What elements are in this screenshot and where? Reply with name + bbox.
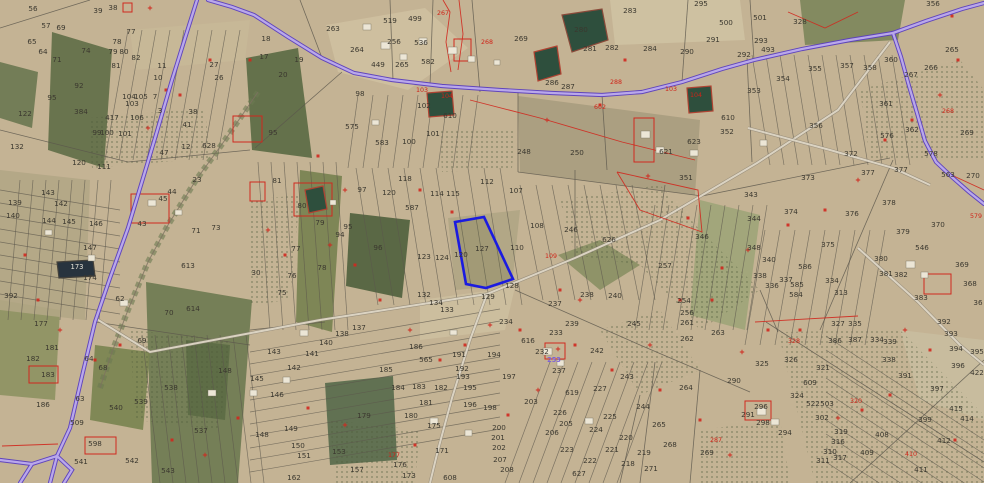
svg-text:238: 238 [580,290,594,299]
svg-text:147: 147 [83,243,97,252]
svg-text:248: 248 [517,147,531,156]
svg-text:536: 536 [414,38,428,47]
svg-text:95: 95 [268,128,277,137]
svg-text:65: 65 [27,37,36,46]
svg-text:384: 384 [74,107,88,116]
svg-text:287: 287 [561,82,575,91]
svg-text:98: 98 [355,89,365,98]
svg-text:64: 64 [38,47,48,56]
svg-text:103: 103 [665,86,677,93]
svg-text:578: 578 [924,149,938,158]
svg-text:122: 122 [18,109,32,118]
svg-text:177: 177 [34,319,48,328]
svg-text:110: 110 [510,243,524,252]
svg-text:587: 587 [405,203,419,212]
svg-text:96: 96 [373,243,383,252]
svg-text:115: 115 [446,189,460,198]
svg-text:149: 149 [284,424,298,433]
svg-text:378: 378 [882,198,896,207]
svg-text:237: 237 [552,366,566,375]
svg-text:357: 357 [840,61,854,70]
svg-text:186: 186 [36,400,50,409]
svg-text:57: 57 [41,21,50,30]
svg-text:179: 179 [357,411,371,420]
svg-text:280: 280 [574,25,588,34]
svg-text:92: 92 [74,81,83,90]
svg-text:182: 182 [434,383,448,392]
svg-text:541: 541 [74,457,88,466]
svg-text:38: 38 [188,107,198,116]
svg-text:254: 254 [677,296,691,305]
svg-text:265: 265 [945,45,959,54]
svg-text:181: 181 [419,398,433,407]
svg-text:151: 151 [297,451,311,460]
svg-text:586: 586 [798,262,812,271]
svg-text:267: 267 [904,70,918,79]
svg-text:79: 79 [315,218,325,227]
svg-text:283: 283 [623,6,637,15]
svg-text:146: 146 [89,219,103,228]
svg-text:180: 180 [404,411,418,420]
svg-text:76: 76 [287,271,297,280]
svg-text:104: 104 [441,93,453,100]
svg-text:132: 132 [10,142,24,151]
svg-text:362: 362 [905,125,919,134]
svg-text:290: 290 [680,47,694,56]
svg-text:351: 351 [679,173,693,182]
svg-text:17: 17 [259,52,268,61]
svg-text:194: 194 [487,350,501,359]
svg-text:360: 360 [884,55,898,64]
svg-text:409: 409 [860,448,874,457]
svg-text:290: 290 [727,376,741,385]
svg-text:10: 10 [153,73,163,82]
svg-text:284: 284 [643,44,657,53]
svg-text:244: 244 [636,402,650,411]
svg-text:338: 338 [882,355,896,364]
svg-text:185: 185 [379,365,393,374]
svg-text:379: 379 [896,227,910,236]
svg-text:74: 74 [81,46,91,55]
svg-text:11: 11 [157,61,166,70]
svg-text:346: 346 [695,232,709,241]
svg-text:146: 146 [270,390,284,399]
svg-text:70: 70 [164,308,174,317]
svg-text:137: 137 [352,323,366,332]
svg-text:519: 519 [383,16,397,25]
svg-text:129: 129 [481,292,495,301]
svg-text:292: 292 [737,50,751,59]
svg-text:20: 20 [278,70,288,79]
svg-text:613: 613 [181,261,195,270]
svg-text:153: 153 [332,447,346,456]
svg-text:256: 256 [680,308,694,317]
svg-text:128: 128 [505,281,519,290]
svg-text:610: 610 [721,113,735,122]
svg-text:537: 537 [194,426,208,435]
svg-text:263: 263 [326,24,340,33]
svg-text:356: 356 [926,0,940,8]
svg-text:77: 77 [291,244,300,253]
svg-text:414: 414 [960,414,974,423]
svg-text:623: 623 [687,137,701,146]
svg-text:124: 124 [435,253,449,262]
svg-text:80: 80 [297,201,307,210]
svg-text:500: 500 [719,18,733,27]
svg-text:267: 267 [437,10,449,17]
svg-text:509: 509 [70,418,84,427]
svg-text:7: 7 [153,92,158,101]
svg-text:120: 120 [382,188,396,197]
svg-text:269: 269 [960,128,974,137]
svg-text:62: 62 [115,294,124,303]
svg-text:415: 415 [949,404,963,413]
svg-text:340: 340 [762,255,776,264]
svg-text:200: 200 [492,423,506,432]
svg-text:224: 224 [589,425,603,434]
svg-text:302: 302 [815,413,829,422]
svg-text:320: 320 [850,398,862,405]
svg-text:105: 105 [134,92,148,101]
svg-text:44: 44 [167,187,177,196]
svg-text:377: 377 [861,168,875,177]
svg-text:373: 373 [801,173,815,182]
svg-text:522: 522 [806,399,820,408]
svg-text:106: 106 [130,113,144,122]
svg-text:264: 264 [679,383,693,392]
svg-text:218: 218 [621,459,635,468]
svg-text:138: 138 [335,329,349,338]
svg-text:411: 411 [914,465,928,474]
svg-text:257: 257 [658,261,672,270]
svg-text:114: 114 [430,189,444,198]
svg-text:387: 387 [848,335,862,344]
svg-text:328: 328 [788,338,800,345]
svg-text:313: 313 [834,288,848,297]
svg-text:608: 608 [443,473,457,482]
svg-text:243: 243 [620,372,634,381]
svg-text:261: 261 [680,318,694,327]
svg-text:100: 100 [100,128,114,137]
svg-text:30: 30 [251,268,261,277]
svg-text:583: 583 [375,138,389,147]
svg-text:264: 264 [350,45,364,54]
svg-text:584: 584 [789,290,803,299]
cadastral-map: 5657693938777879808182747164659295122384… [0,0,984,483]
svg-text:208: 208 [500,465,514,474]
svg-text:196: 196 [463,400,477,409]
svg-text:112: 112 [480,177,494,186]
svg-text:143: 143 [267,347,281,356]
svg-text:71: 71 [52,55,61,64]
svg-text:203: 203 [524,397,538,406]
svg-text:81: 81 [111,61,120,70]
svg-text:36: 36 [973,298,983,307]
svg-text:334: 334 [825,276,839,285]
svg-text:602: 602 [594,104,606,111]
svg-text:207: 207 [493,455,507,464]
svg-text:198: 198 [483,403,497,412]
svg-text:501: 501 [753,13,767,22]
svg-text:205: 205 [559,419,573,428]
svg-text:250: 250 [570,148,584,157]
svg-text:183: 183 [412,382,426,391]
svg-text:23: 23 [192,175,201,184]
svg-text:344: 344 [747,214,761,223]
svg-text:294: 294 [778,428,792,437]
svg-text:449: 449 [371,60,385,69]
svg-text:343: 343 [744,190,758,199]
svg-text:370: 370 [931,220,945,229]
svg-text:627: 627 [572,469,586,478]
svg-text:397: 397 [930,384,944,393]
svg-text:422: 422 [970,368,984,377]
svg-text:293: 293 [754,36,768,45]
svg-text:123: 123 [417,252,431,261]
svg-text:619: 619 [565,388,579,397]
svg-text:237: 237 [548,299,562,308]
svg-text:227: 227 [593,384,607,393]
svg-text:361: 361 [879,99,893,108]
svg-text:109: 109 [545,253,557,260]
svg-text:39: 39 [93,6,103,15]
svg-text:145: 145 [250,374,264,383]
svg-text:377: 377 [894,165,908,174]
svg-text:282: 282 [605,43,619,52]
svg-text:120: 120 [72,158,86,167]
svg-text:142: 142 [54,199,68,208]
svg-text:628: 628 [202,141,216,150]
svg-text:80: 80 [119,47,129,56]
svg-text:598: 598 [88,439,102,448]
svg-text:585: 585 [790,280,804,289]
svg-text:291: 291 [706,35,720,44]
svg-text:382: 382 [894,270,908,279]
svg-text:368: 368 [963,279,977,288]
svg-text:246: 246 [564,225,578,234]
svg-text:352: 352 [720,127,734,136]
svg-text:327: 327 [831,319,845,328]
svg-text:193: 193 [456,372,470,381]
svg-text:392: 392 [937,317,951,326]
svg-text:111: 111 [97,162,111,171]
svg-text:380: 380 [874,254,888,263]
svg-text:269: 269 [514,34,528,43]
svg-text:356: 356 [809,121,823,130]
svg-text:118: 118 [398,174,412,183]
svg-text:81: 81 [272,176,281,185]
svg-text:144: 144 [42,216,56,225]
svg-text:157: 157 [350,465,364,474]
svg-text:103: 103 [416,87,428,94]
svg-text:202: 202 [492,443,506,452]
svg-text:287: 287 [710,437,722,444]
svg-text:499: 499 [408,14,422,23]
svg-text:143: 143 [41,188,55,197]
svg-text:575: 575 [345,122,359,131]
svg-text:240: 240 [608,291,622,300]
svg-text:38: 38 [108,3,118,12]
svg-text:369: 369 [955,260,969,269]
svg-text:245: 245 [627,319,641,328]
svg-text:269: 269 [700,448,714,457]
svg-text:242: 242 [590,346,604,355]
svg-text:232: 232 [535,347,549,356]
svg-text:47: 47 [159,148,168,157]
svg-text:579: 579 [970,213,982,220]
svg-text:582: 582 [421,57,435,66]
svg-text:201: 201 [491,433,505,442]
svg-text:78: 78 [112,37,122,46]
svg-text:392: 392 [4,291,18,300]
svg-text:324: 324 [790,391,804,400]
svg-text:412: 412 [937,436,951,445]
svg-text:71: 71 [191,226,200,235]
svg-text:234: 234 [499,317,513,326]
svg-text:319: 319 [834,427,848,436]
svg-text:395: 395 [970,347,984,356]
svg-text:77: 77 [126,27,135,36]
svg-text:43: 43 [137,219,146,228]
svg-text:94: 94 [335,230,345,239]
svg-text:183: 183 [41,370,55,379]
svg-text:328: 328 [793,17,807,26]
svg-text:104: 104 [690,92,702,99]
svg-text:176: 176 [393,460,407,469]
svg-text:148: 148 [218,366,232,375]
svg-text:391: 391 [898,371,912,380]
svg-text:626: 626 [602,235,616,244]
svg-text:69: 69 [137,336,147,345]
svg-text:286: 286 [545,78,559,87]
svg-text:141: 141 [305,349,319,358]
svg-text:539: 539 [134,397,148,406]
svg-text:56: 56 [28,4,38,13]
svg-text:26: 26 [214,73,224,82]
svg-text:288: 288 [610,79,622,86]
svg-text:173: 173 [402,471,416,480]
svg-text:408: 408 [875,430,889,439]
svg-text:325: 325 [755,359,769,368]
svg-text:220: 220 [619,433,633,442]
svg-text:381: 381 [879,269,893,278]
svg-text:139: 139 [8,198,22,207]
svg-text:375: 375 [821,240,835,249]
svg-text:321: 321 [816,363,830,372]
svg-text:150: 150 [291,441,305,450]
svg-text:108: 108 [530,221,544,230]
svg-text:97: 97 [357,185,366,194]
svg-text:107: 107 [509,186,523,195]
svg-text:268: 268 [663,440,677,449]
map-viewport[interactable]: 5657693938777879808182747164659295122384… [0,0,984,483]
svg-text:326: 326 [784,355,798,364]
svg-text:576: 576 [880,131,894,140]
svg-text:181: 181 [45,343,59,352]
svg-text:12: 12 [181,142,190,151]
svg-text:348: 348 [747,243,761,252]
svg-text:120: 120 [454,250,468,259]
svg-text:27: 27 [209,60,218,69]
svg-text:73: 73 [211,223,220,232]
svg-text:281: 281 [583,44,597,53]
svg-text:63: 63 [75,394,84,403]
svg-text:355: 355 [808,64,822,73]
svg-text:383: 383 [914,293,928,302]
svg-text:82: 82 [131,53,140,62]
svg-text:376: 376 [845,209,859,218]
svg-text:64: 64 [84,354,94,363]
svg-text:311: 311 [816,456,830,465]
svg-text:410: 410 [905,451,917,458]
svg-text:191: 191 [452,350,466,359]
svg-text:162: 162 [287,473,301,482]
svg-text:78: 78 [317,263,327,272]
svg-text:45: 45 [158,194,167,203]
svg-text:171: 171 [435,446,449,455]
svg-text:262: 262 [680,334,694,343]
svg-text:295: 295 [694,0,708,8]
svg-text:394: 394 [949,344,963,353]
svg-text:543: 543 [161,466,175,475]
svg-text:546: 546 [915,243,929,252]
svg-text:393: 393 [944,329,958,338]
svg-text:133: 133 [440,305,454,314]
svg-text:271: 271 [644,464,658,473]
svg-text:127: 127 [475,244,489,253]
svg-text:610: 610 [443,111,457,120]
svg-text:265: 265 [652,420,666,429]
svg-text:69: 69 [56,23,66,32]
svg-text:223: 223 [560,445,574,454]
svg-text:148: 148 [255,430,269,439]
svg-text:253: 253 [547,356,561,364]
svg-text:186: 186 [409,342,423,351]
svg-text:3: 3 [158,106,163,115]
svg-text:195: 195 [463,383,477,392]
svg-text:197: 197 [502,372,516,381]
svg-text:336: 336 [765,281,779,290]
svg-text:268: 268 [481,39,493,46]
svg-text:145: 145 [62,217,76,226]
svg-text:503: 503 [820,399,834,408]
svg-text:263: 263 [711,328,725,337]
svg-text:233: 233 [549,328,563,337]
svg-text:182: 182 [26,354,40,363]
svg-text:18: 18 [261,34,271,43]
svg-text:75: 75 [277,288,286,297]
svg-text:542: 542 [125,456,139,465]
svg-text:338: 338 [753,271,767,280]
svg-text:95: 95 [47,93,56,102]
svg-text:102: 102 [417,101,431,110]
svg-text:616: 616 [521,336,535,345]
svg-text:266: 266 [924,63,938,72]
svg-text:353: 353 [747,86,761,95]
svg-text:219: 219 [637,448,651,457]
svg-text:140: 140 [6,211,20,220]
svg-text:374: 374 [784,207,798,216]
svg-text:317: 317 [833,453,847,462]
svg-text:417: 417 [105,113,119,122]
svg-text:174: 174 [83,273,97,282]
svg-text:177: 177 [388,452,400,459]
svg-text:372: 372 [844,149,858,158]
svg-text:296: 296 [754,402,768,411]
svg-text:298: 298 [756,418,770,427]
svg-text:339: 339 [883,337,897,346]
svg-text:225: 225 [603,412,617,421]
